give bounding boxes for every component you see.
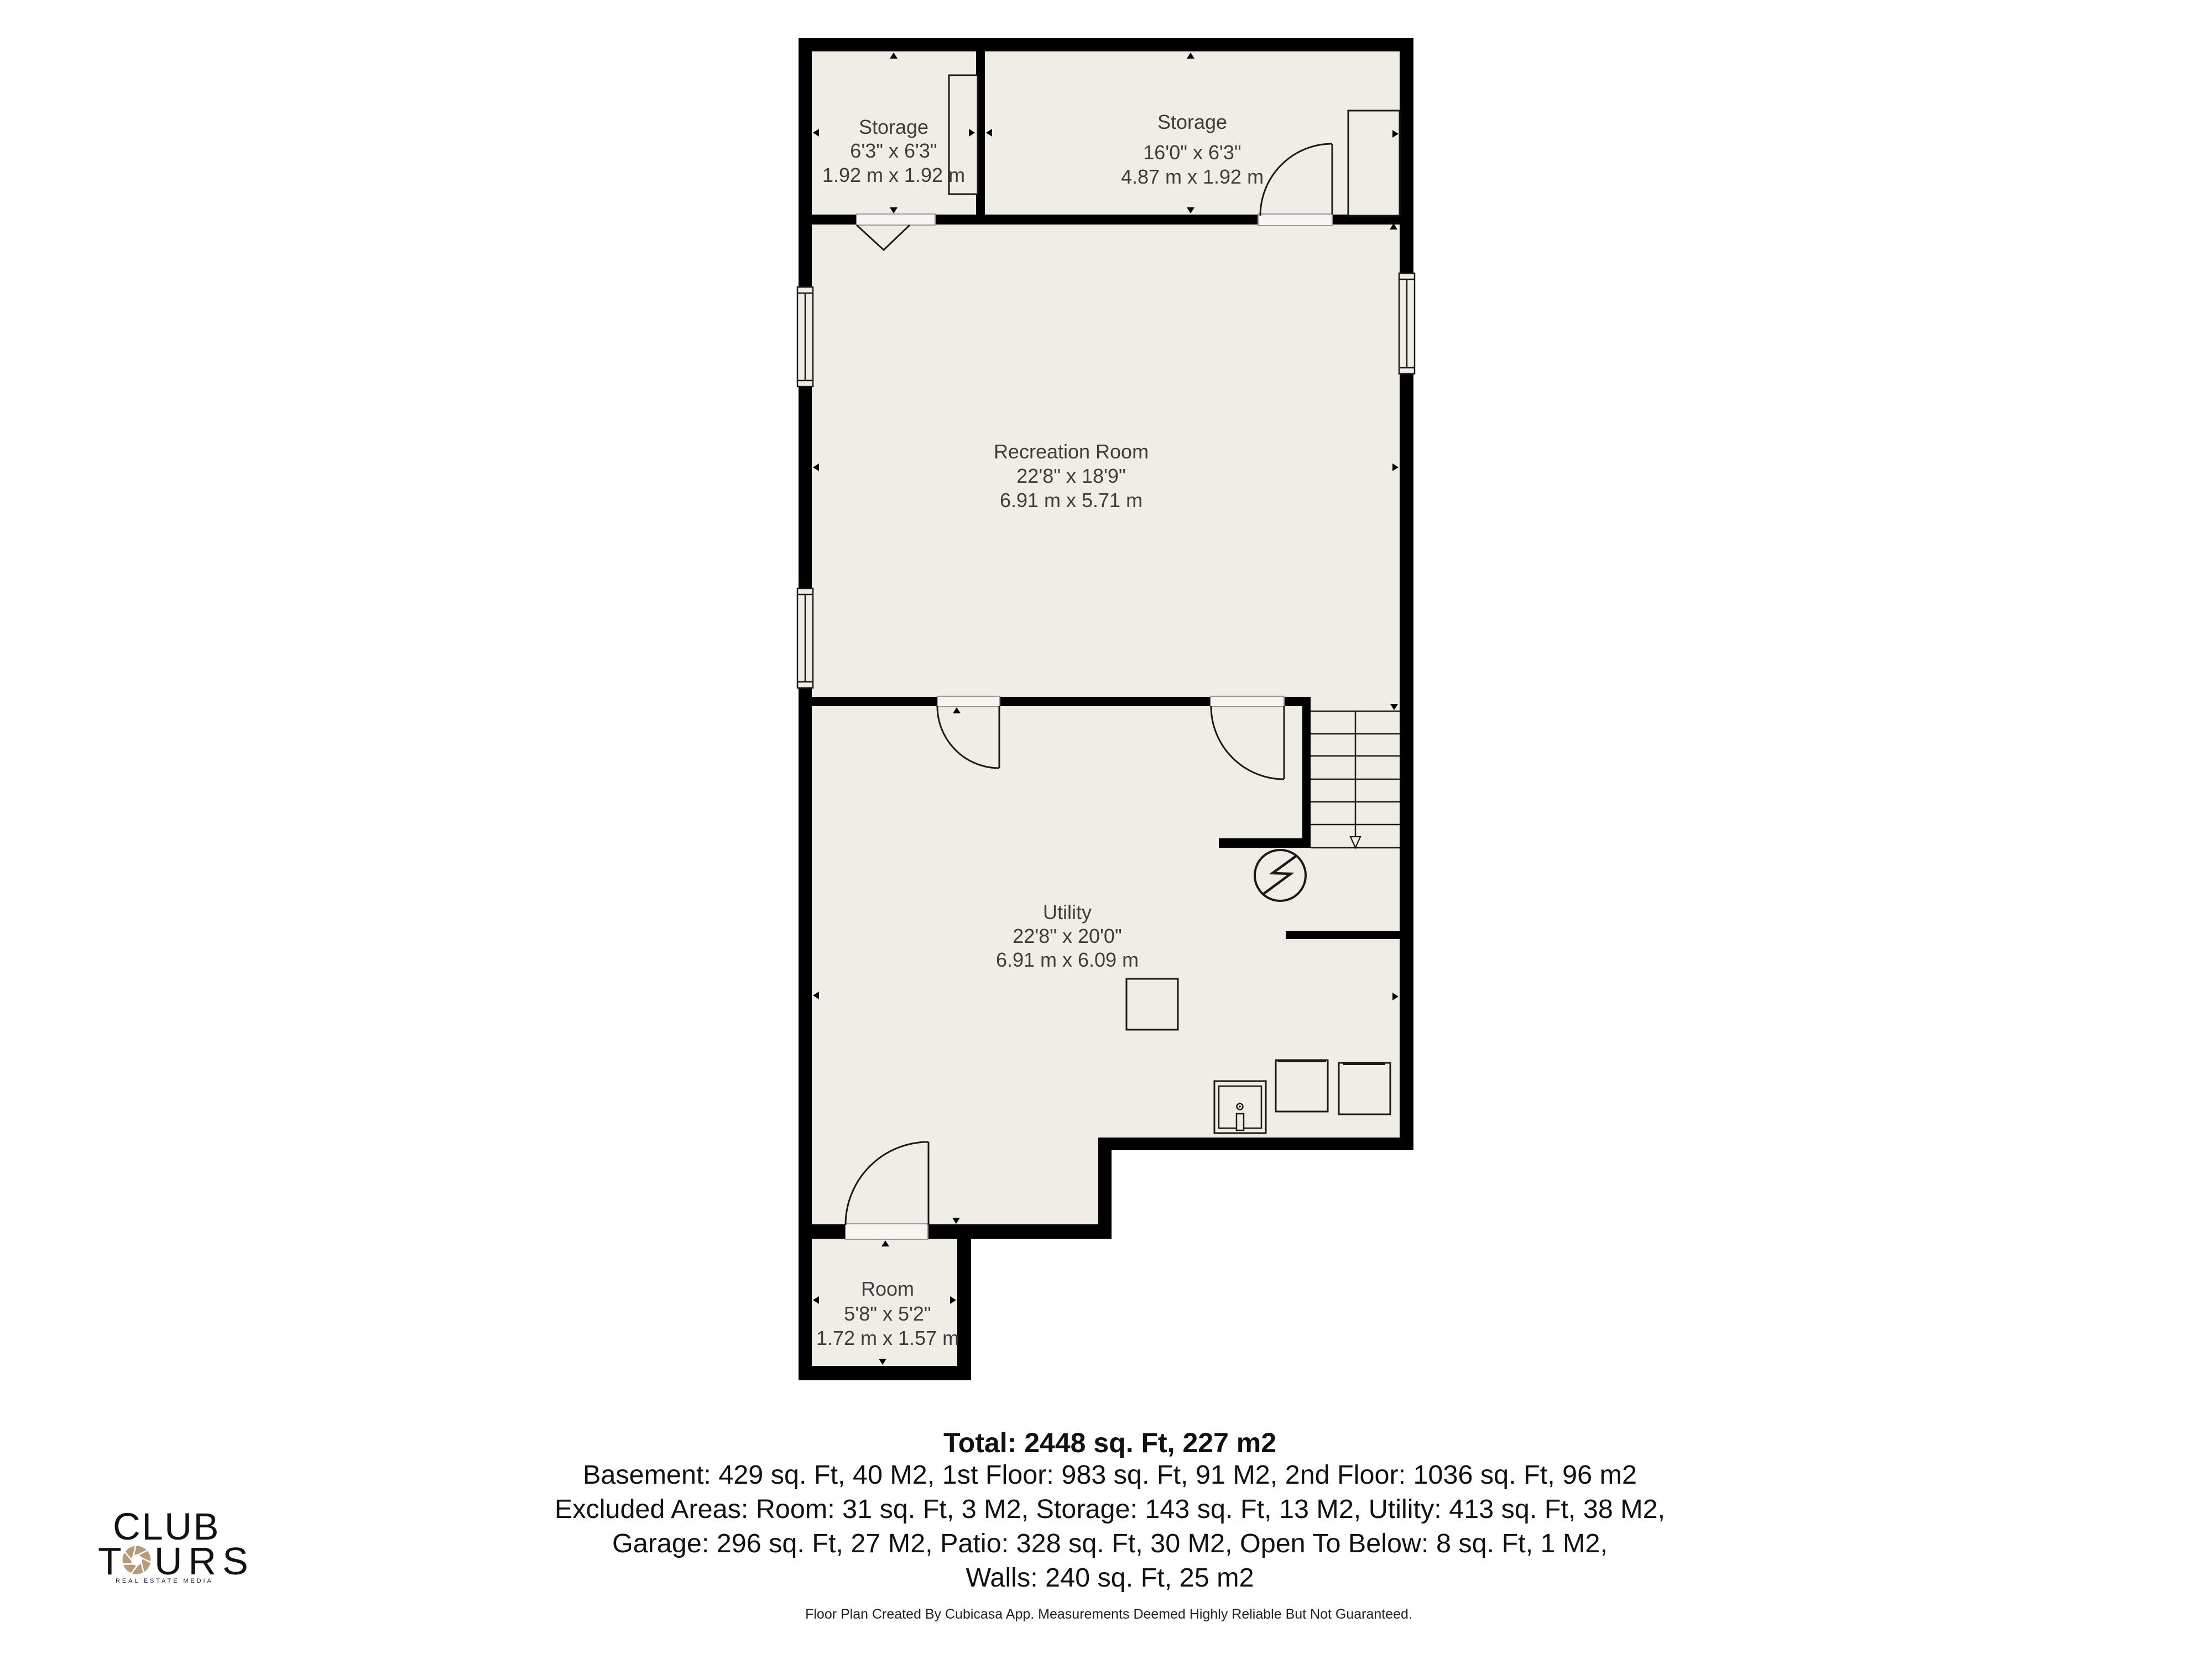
svg-text:REAL ESTATE MEDIA: REAL ESTATE MEDIA: [116, 1578, 213, 1584]
svg-text:Basement: 429 sq. Ft, 40 M2, 1: Basement: 429 sq. Ft, 40 M2, 1st Floor: …: [583, 1460, 1637, 1490]
svg-text:T: T: [98, 1540, 125, 1583]
svg-text:URS: URS: [154, 1540, 254, 1583]
svg-text:Total: 2448 sq. Ft, 227 m2: Total: 2448 sq. Ft, 227 m2: [943, 1427, 1276, 1458]
svg-text:16'0" x 6'3": 16'0" x 6'3": [1143, 141, 1241, 164]
svg-text:22'8" x 18'9": 22'8" x 18'9": [1016, 465, 1125, 487]
svg-text:Excluded Areas: Room: 31 sq. F: Excluded Areas: Room: 31 sq. Ft, 3 M2, S…: [555, 1494, 1665, 1524]
svg-text:Recreation Room: Recreation Room: [994, 440, 1149, 463]
svg-text:6.91 m x 5.71 m: 6.91 m x 5.71 m: [1000, 489, 1142, 512]
svg-text:Storage: Storage: [859, 116, 928, 138]
svg-text:1.92 m x 1.92 m: 1.92 m x 1.92 m: [822, 164, 965, 186]
svg-text:Room: Room: [861, 1277, 914, 1300]
svg-text:Storage: Storage: [1157, 111, 1227, 133]
svg-text:1.72 m x 1.57 m: 1.72 m x 1.57 m: [816, 1327, 959, 1349]
svg-text:6'3" x 6'3": 6'3" x 6'3": [850, 139, 937, 162]
svg-text:Garage: 296 sq. Ft, 27 M2, Pat: Garage: 296 sq. Ft, 27 M2, Patio: 328 sq…: [612, 1528, 1608, 1558]
svg-text:5'8" x 5'2": 5'8" x 5'2": [844, 1302, 931, 1325]
svg-text:22'8" x 20'0": 22'8" x 20'0": [1013, 925, 1121, 947]
svg-text:Utility: Utility: [1043, 901, 1092, 924]
svg-text:6.91 m x 6.09 m: 6.91 m x 6.09 m: [996, 948, 1139, 971]
svg-text:4.87 m x 1.92 m: 4.87 m x 1.92 m: [1121, 165, 1264, 188]
svg-text:Walls: 240 sq. Ft, 25 m2: Walls: 240 sq. Ft, 25 m2: [966, 1563, 1254, 1593]
svg-text:Floor Plan Created By Cubicasa: Floor Plan Created By Cubicasa App. Meas…: [805, 1606, 1412, 1622]
